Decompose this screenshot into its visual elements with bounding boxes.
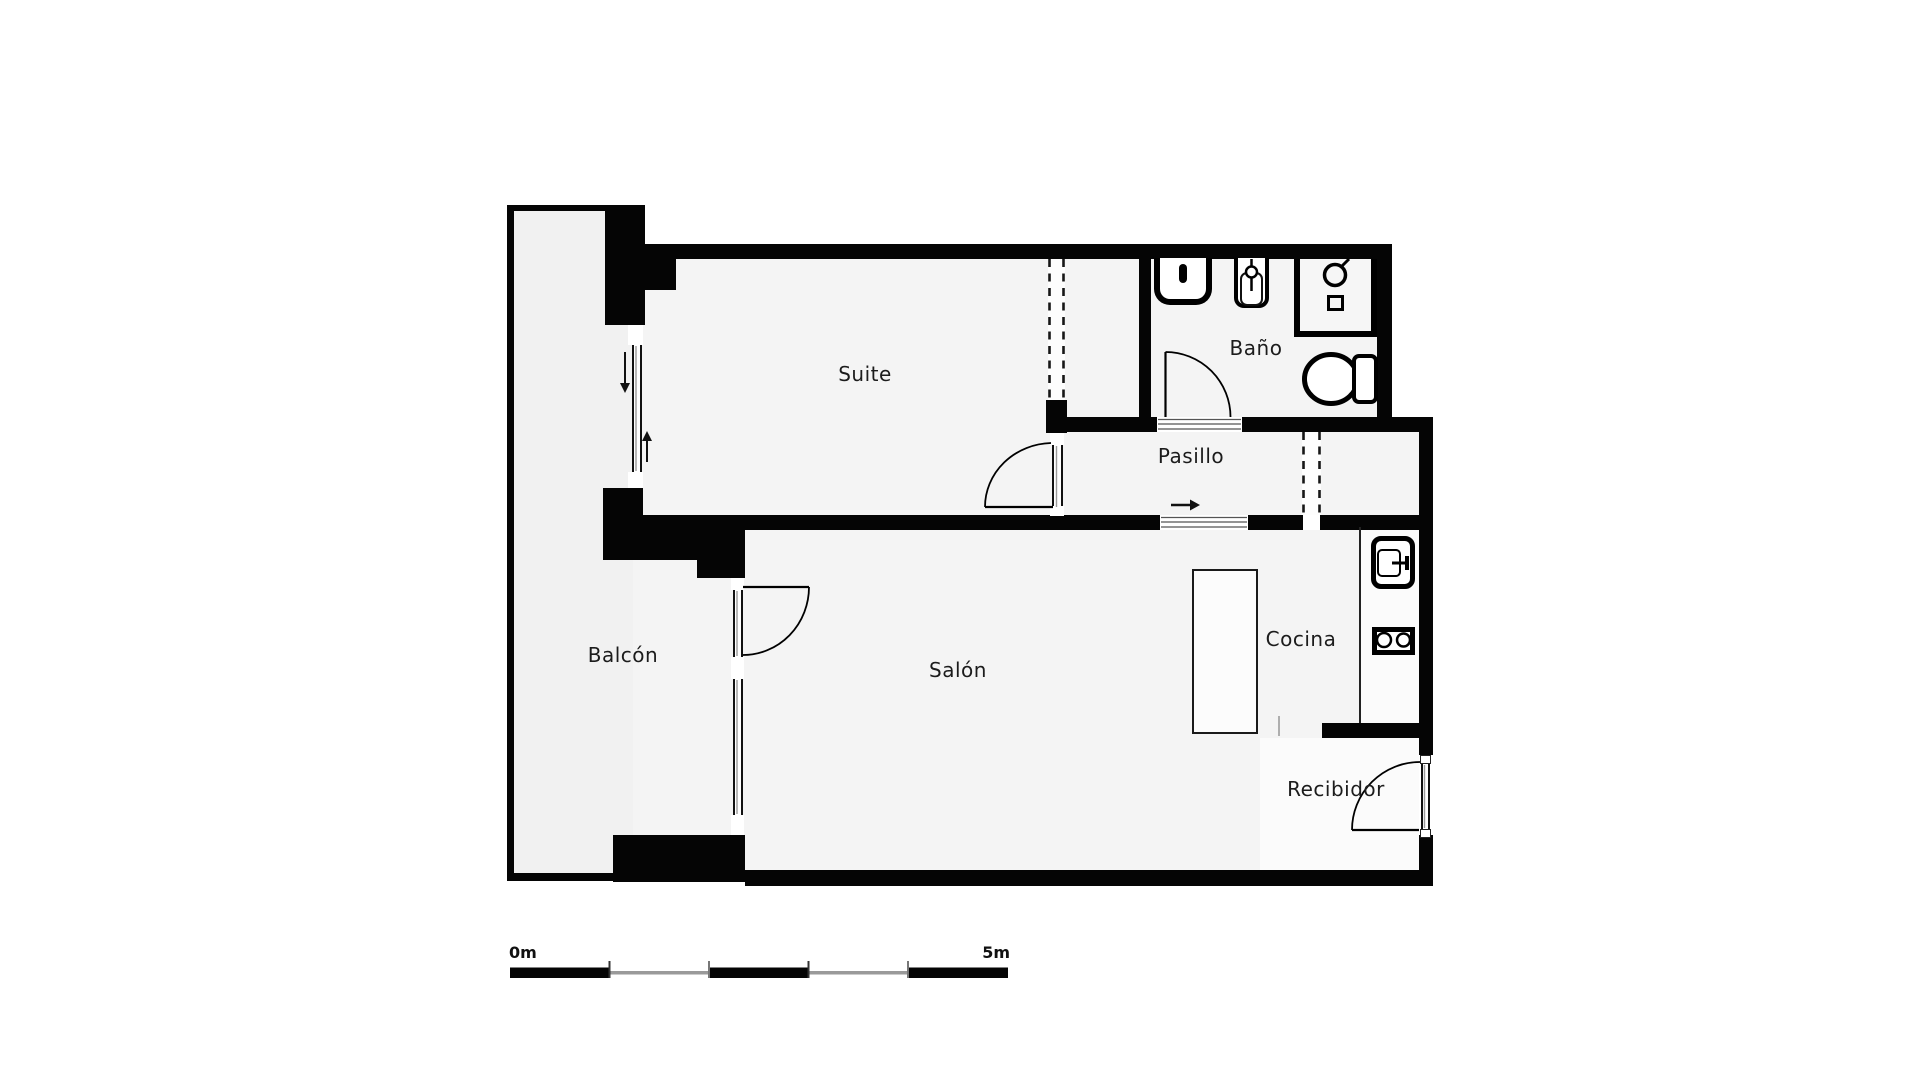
wall-bottom-block (613, 835, 745, 882)
sink-basin-icon (1240, 272, 1263, 306)
floor-pasillo-closet (1302, 432, 1321, 515)
entrance-door-leaf-closed (1421, 764, 1430, 829)
shower-drain-icon (1327, 295, 1344, 311)
room-label-pasillo: Pasillo (1158, 444, 1224, 468)
room-label-suite: Suite (838, 362, 892, 386)
bathroom-door-threshold (1157, 417, 1242, 432)
kitchen-wall-gap (1303, 515, 1320, 530)
room-label-salon: Salón (929, 658, 987, 682)
scale-bar (510, 961, 1008, 978)
scale-label-start: 0m (509, 943, 537, 962)
wall-kitchen-recibidor (1322, 723, 1432, 738)
wall-balcony-left (507, 205, 514, 881)
suite-door-jamb-bottom (1050, 506, 1064, 516)
wall-bathroom-right (1377, 259, 1392, 432)
wall-balcony-bottom (507, 873, 613, 881)
kitchen-counter-line (1359, 527, 1362, 723)
room-label-cocina: Cocina (1266, 627, 1337, 651)
oven-door-icon (1377, 549, 1401, 577)
wall-right-upper (1419, 417, 1433, 755)
salon-balcony-door-leaf (733, 590, 743, 657)
wall-bathroom-bottom-left (1139, 417, 1157, 432)
sliding-door-leaf (632, 345, 642, 472)
salon-window-jamb-mid (731, 657, 744, 679)
wall-salon-bottom (745, 870, 1433, 886)
suite-door-jamb-top (1050, 433, 1064, 445)
pasillo-salon-threshold (1160, 515, 1248, 530)
salon-door-jamb-top (731, 578, 744, 590)
room-label-balcon: Balcón (588, 643, 658, 667)
wall-pasillo-bottom-b (1248, 515, 1303, 530)
kitchen-island (1192, 569, 1258, 734)
wall-pasillo-bottom-c (1320, 515, 1433, 530)
wall-junction-b (697, 560, 745, 578)
room-label-recibidor: Recibidor (1287, 777, 1385, 801)
cooktop-icon (1372, 627, 1415, 655)
salon-window-jamb-bottom (731, 815, 744, 835)
sliding-door-jamb-top (628, 325, 643, 345)
floor-recibidor (1260, 738, 1419, 870)
wall-pasillo-top-left (1062, 417, 1139, 432)
scale-label-end: 5m (982, 943, 1010, 962)
wall-bathroom-bottom-right (1242, 417, 1432, 432)
salon-balcony-window (733, 679, 743, 815)
floorplan-canvas: Suite Baño Pasillo Balcón Salón Cocina R… (0, 0, 1920, 1080)
wall-junction-wide (603, 515, 745, 560)
wall-suite-top (676, 244, 1392, 259)
wall-suite-door-block (1046, 400, 1067, 433)
suite-door-leaf-closed (1052, 445, 1063, 508)
floor-suite-wardrobe (1048, 259, 1065, 400)
entrance-jamb-bottom (1420, 829, 1431, 838)
wall-top-left-block (605, 205, 645, 325)
sliding-door-jamb-bottom (628, 472, 643, 488)
wall-balcony-top (507, 205, 605, 211)
wall-junction-a (603, 488, 643, 518)
wall-top-step-block (645, 244, 676, 290)
entrance-jamb-top (1420, 755, 1431, 764)
room-label-bano: Baño (1230, 336, 1283, 360)
bidet-faucet-icon (1179, 264, 1187, 283)
wall-pasillo-bottom-a (1062, 515, 1160, 530)
wall-bathroom-left (1139, 259, 1151, 432)
